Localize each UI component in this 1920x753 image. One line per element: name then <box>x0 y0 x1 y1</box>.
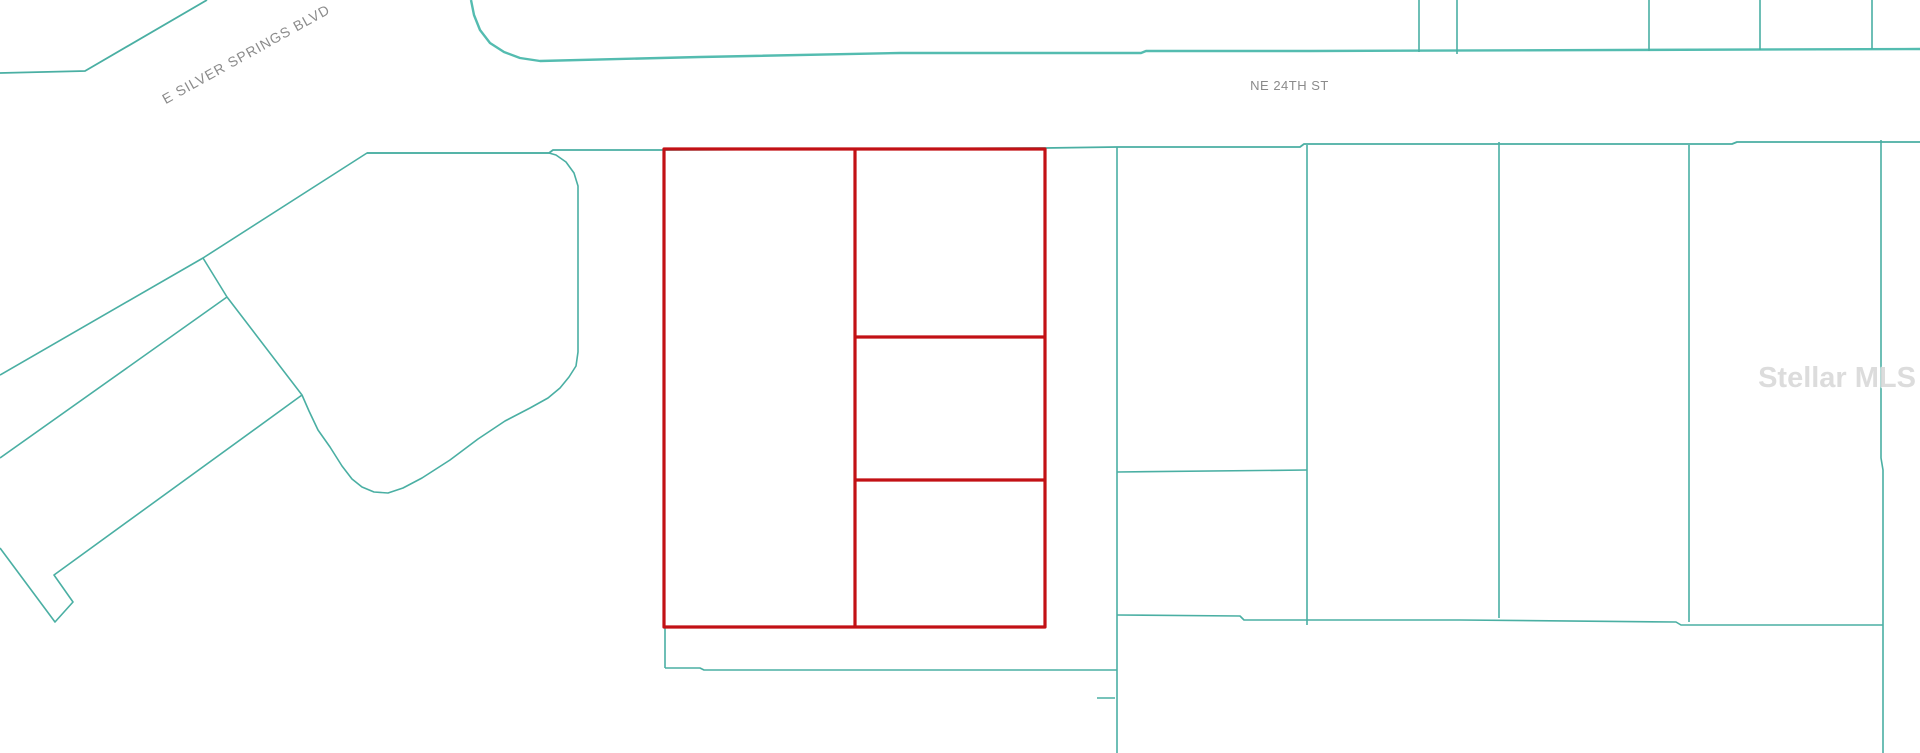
ne-24th-st-north-edge <box>471 0 1920 61</box>
street-label-ne-24th-st: NE 24TH ST <box>1242 78 1337 93</box>
subject-parcel-tail-horizontal <box>665 668 1117 670</box>
irregular-parcel-outline <box>203 153 578 493</box>
east-parcel-bottom-mid <box>1117 470 1307 472</box>
diagonal-parcel-line-lower <box>0 297 227 458</box>
watermark-stellar-mls: Stellar MLS <box>1758 362 1916 395</box>
parcel-map: E SILVER SPRINGS BLVD NE 24TH ST Stellar… <box>0 0 1920 753</box>
south-boundary-line <box>1117 615 1883 625</box>
map-lines-layer <box>0 0 1920 753</box>
south-right-of-way-line <box>367 142 1920 153</box>
e-silver-springs-blvd-north-edge <box>0 0 207 73</box>
e-silver-springs-blvd-south-edge <box>0 258 203 375</box>
east-parcel-divider-v5 <box>1881 140 1883 753</box>
diagonal-strip-with-hook <box>0 395 302 622</box>
